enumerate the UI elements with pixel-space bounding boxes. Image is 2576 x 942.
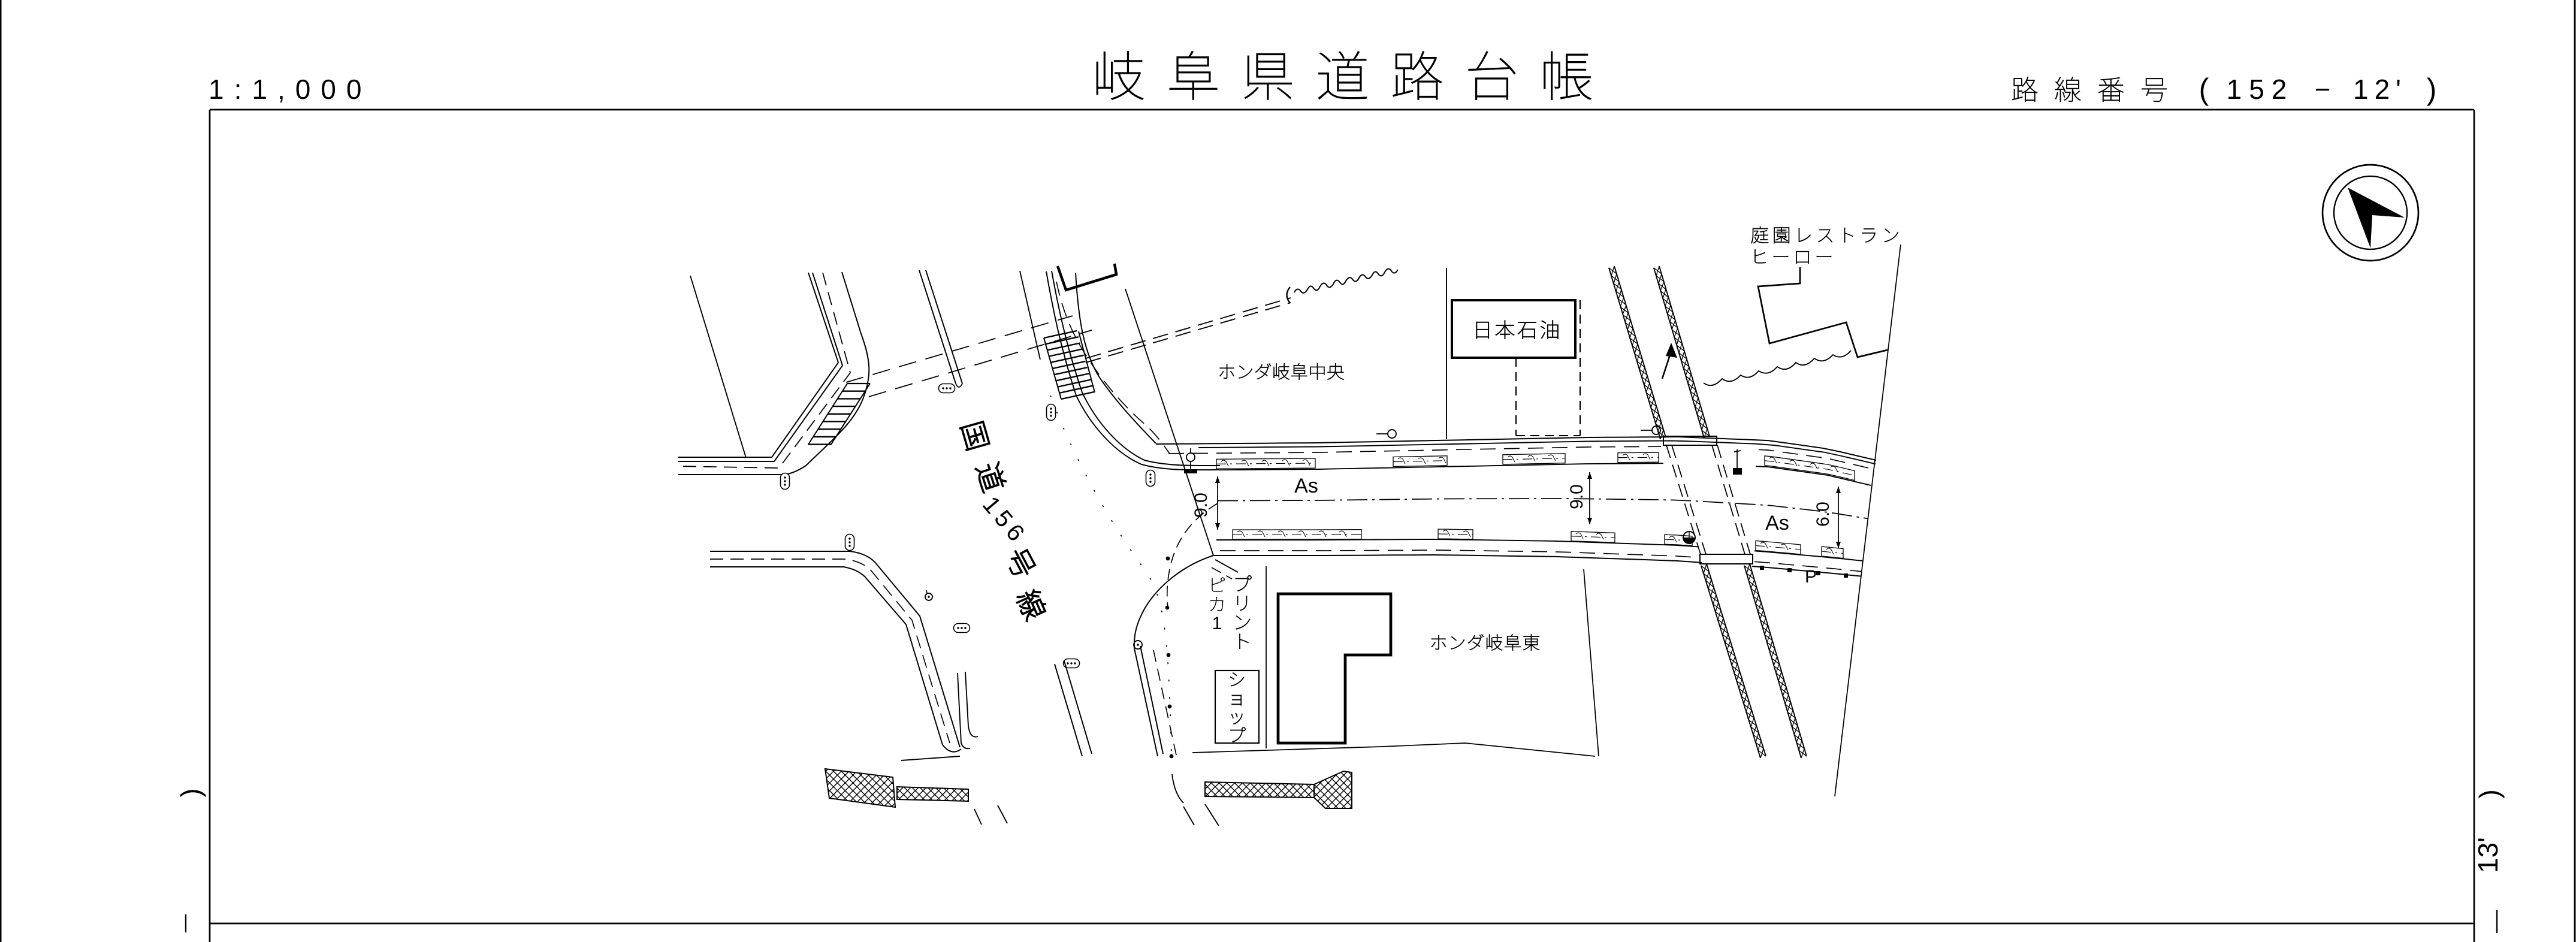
svg-text:(: ( bbox=[2199, 73, 2209, 106]
svg-text:12': 12' bbox=[2353, 74, 2407, 105]
svg-text:6.0: 6.0 bbox=[1813, 502, 1833, 527]
svg-text:(: ( bbox=[180, 788, 211, 798]
svg-text:1: 1 bbox=[1212, 614, 1222, 633]
svg-text:): ) bbox=[2427, 73, 2437, 106]
svg-text:As: As bbox=[1294, 475, 1318, 497]
svg-text:−: − bbox=[2315, 74, 2331, 105]
svg-text:9.0: 9.0 bbox=[1191, 493, 1211, 518]
svg-text:1:1,000: 1:1,000 bbox=[209, 74, 372, 105]
svg-text:P: P bbox=[1805, 567, 1817, 587]
svg-text:13': 13' bbox=[2472, 837, 2503, 873]
svg-text:152: 152 bbox=[2227, 74, 2294, 105]
svg-text:9.0: 9.0 bbox=[1567, 484, 1587, 509]
svg-text:): ) bbox=[2474, 789, 2505, 798]
svg-text:As: As bbox=[1765, 512, 1789, 535]
